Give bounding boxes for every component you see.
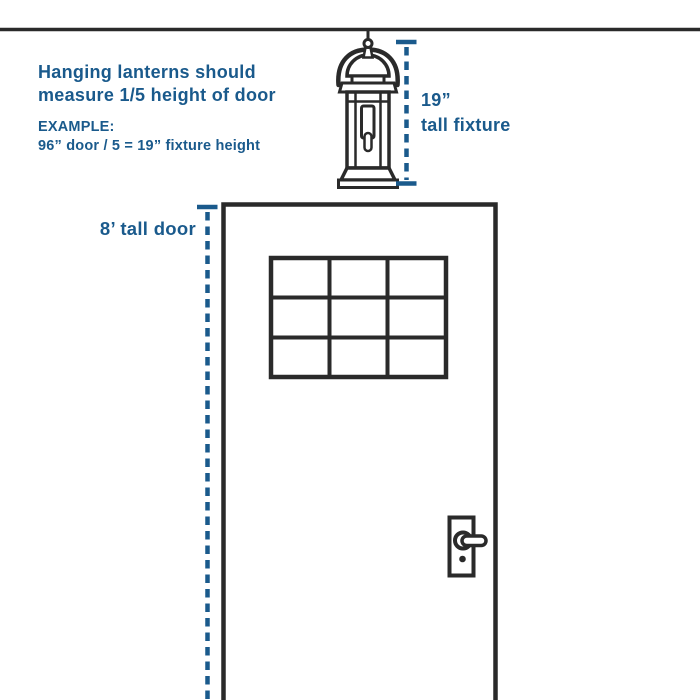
guideline-note-line2: measure 1/5 height of door [38,84,276,107]
fixture-dimension-value: 19” [421,88,511,113]
door-height-dimension-line [197,207,218,700]
hanging-lantern-icon [338,30,397,188]
door-outline [224,205,496,700]
guideline-note-line1: Hanging lanterns should [38,61,276,84]
example-label: EXAMPLE: [38,118,260,137]
fixture-dimension-label: 19” tall fixture [421,88,511,138]
fixture-dimension-caption: tall fixture [421,113,511,138]
door-dimension-label: 8’ tall door [36,218,196,240]
lantern-sizing-diagram: Hanging lanterns should measure 1/5 heig… [0,0,700,700]
example-block: EXAMPLE: 96” door / 5 = 19” fixture heig… [38,118,260,156]
door-handle-icon [450,518,487,576]
example-formula: 96” door / 5 = 19” fixture height [38,137,260,156]
fixture-height-dimension-line [396,42,417,184]
door-window-grid [271,258,446,377]
keyhole-dot [459,556,466,563]
guideline-note: Hanging lanterns should measure 1/5 heig… [38,61,276,107]
